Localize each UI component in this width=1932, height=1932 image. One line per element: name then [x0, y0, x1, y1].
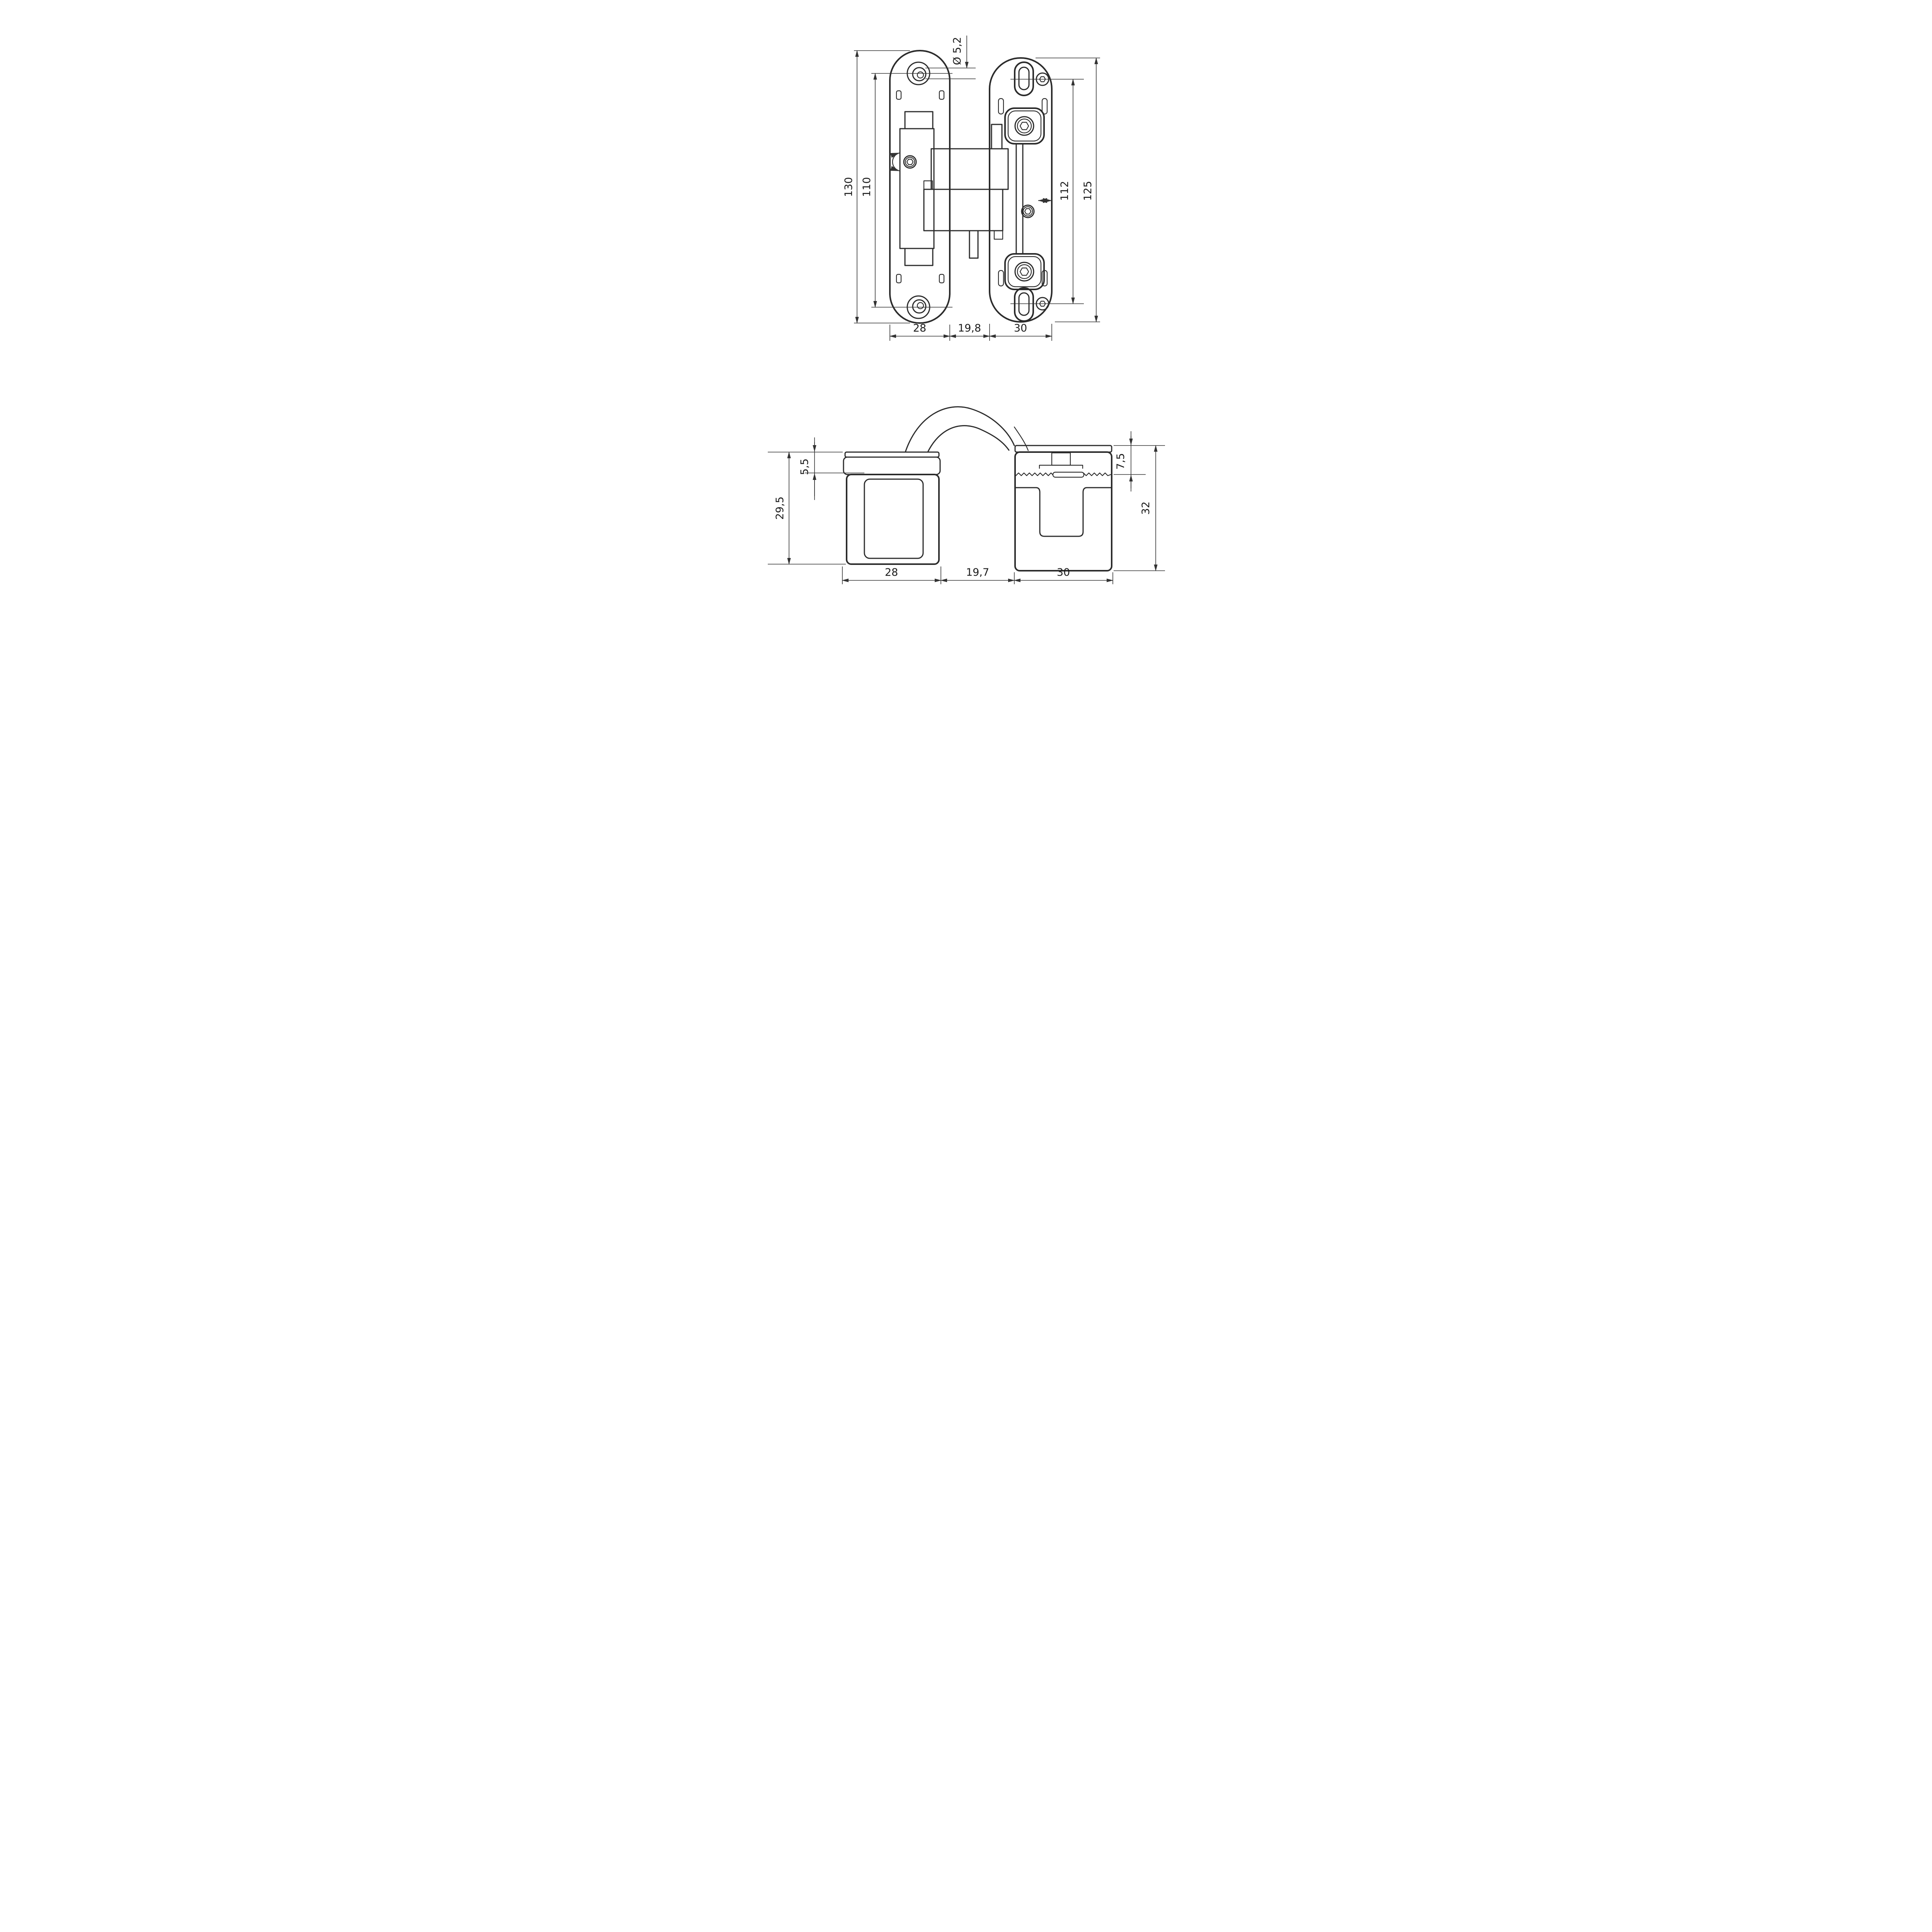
milled-pocket-left: [900, 112, 934, 265]
dim-label: 19,8: [958, 322, 981, 334]
dim-label: 29,5: [774, 497, 786, 520]
dim-label: 110: [861, 177, 873, 197]
side-view: 29,5 5,5 7,5 32: [768, 407, 1165, 584]
pivot-arm: [905, 407, 1028, 452]
dim-label: 30: [1057, 566, 1070, 578]
adjustment-screw-left: [904, 156, 916, 168]
slot: [939, 274, 944, 283]
dim-label: 30: [1014, 322, 1027, 334]
dim-label: 125: [1082, 181, 1094, 201]
dim-hole-spacing-right: 112: [1059, 79, 1073, 304]
dim-hole-diameter: Ø 5,2: [925, 36, 976, 79]
dim-width-chain-side: 28 19,7 30: [842, 566, 1113, 584]
dim-label: 28: [913, 322, 926, 334]
central-linkage: [924, 124, 1008, 258]
oblong-slot-bottom: [1015, 288, 1033, 321]
slot: [939, 91, 944, 99]
dim-label: 5,5: [799, 459, 811, 475]
left-mounting-plate: [890, 51, 950, 323]
oblong-slot-top: [1015, 62, 1033, 95]
dim-flange-depth-left: 5,5: [799, 437, 864, 500]
dim-label: Ø 5,2: [951, 37, 963, 65]
dim-cup-depth-right: 7,5: [1114, 431, 1146, 492]
socket-screw-insert-top: [1005, 108, 1044, 144]
left-cup-body: [844, 452, 940, 564]
rotation-arrow-icon: [893, 153, 899, 171]
screw-band: [1053, 472, 1084, 477]
slot: [896, 91, 901, 99]
slot: [896, 274, 901, 283]
socket-screw-insert-bottom: [1005, 254, 1044, 289]
hinge-technical-drawing: Ø 5,2 130 110 112 125: [744, 0, 1188, 595]
dim-width-chain-front: 28 19,8 30: [890, 322, 1052, 341]
dim-label: 7,5: [1115, 453, 1127, 470]
dim-label: 112: [1059, 181, 1071, 201]
dim-label: 28: [885, 566, 898, 578]
adjustment-screw-right: [1022, 205, 1034, 218]
slot: [998, 270, 1003, 286]
dim-label: 19,7: [966, 566, 989, 578]
drawing-sheet: Ø 5,2 130 110 112 125: [744, 0, 1188, 595]
dim-hole-spacing-left: 110: [861, 73, 875, 307]
right-cup-body: [1015, 446, 1112, 571]
dim-label: 130: [843, 177, 855, 197]
dim-label: 32: [1140, 502, 1152, 515]
front-view: Ø 5,2 130 110 112 125: [843, 36, 1100, 341]
slot: [998, 99, 1003, 114]
